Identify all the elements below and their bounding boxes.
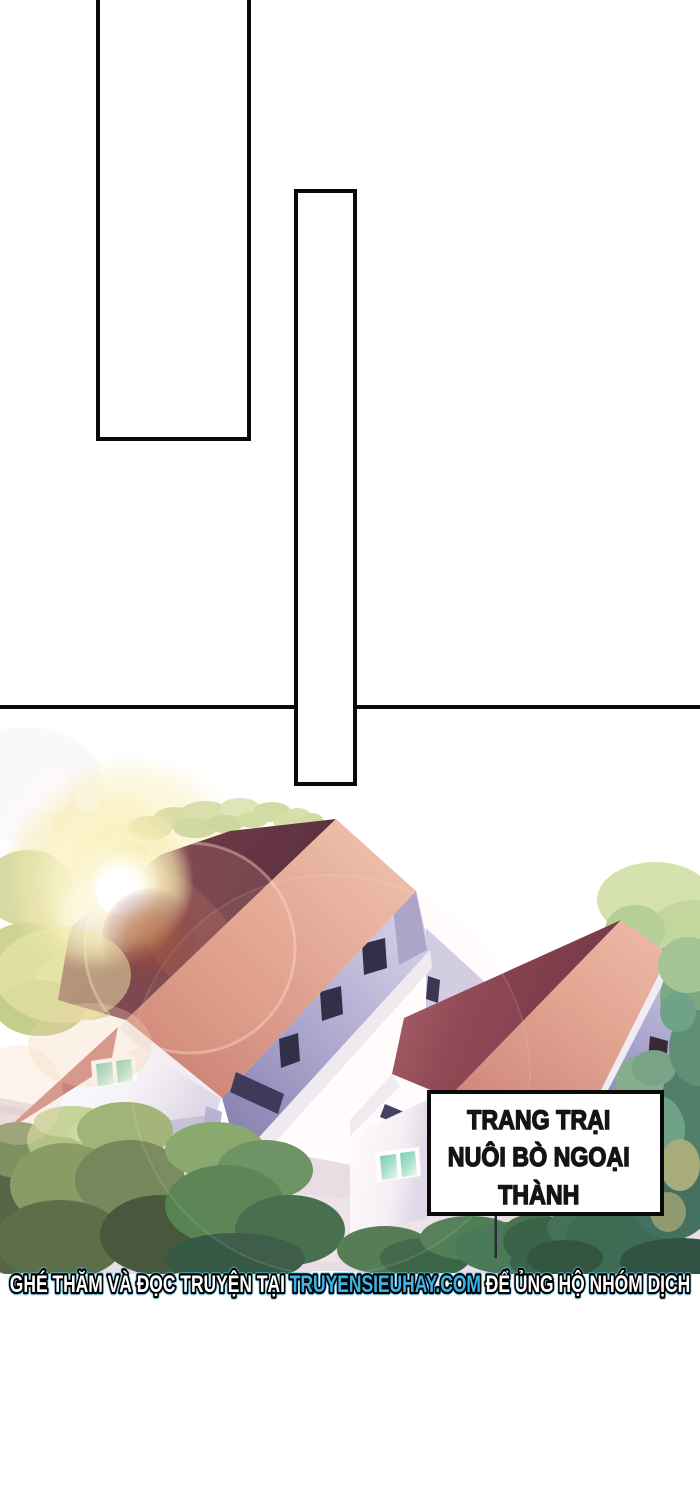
svg-text:GHÉ THĂM VÀ ĐỌC TRUYỆN TẠI TRU: GHÉ THĂM VÀ ĐỌC TRUYỆN TẠI TRUYENSIEUHAY… [10,1270,690,1297]
